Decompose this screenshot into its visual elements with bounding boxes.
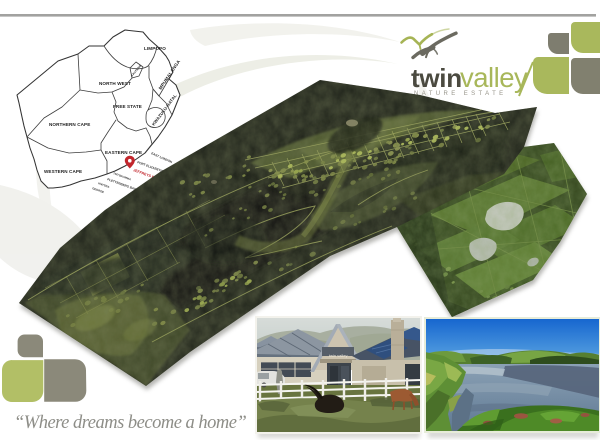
svg-text:NATURE ESTATE: NATURE ESTATE bbox=[414, 91, 507, 97]
svg-text:NORTH WEST: NORTH WEST bbox=[99, 81, 131, 86]
svg-text:NORTHERN CAPE: NORTHERN CAPE bbox=[49, 122, 90, 127]
svg-text:EASTERN CAPE: EASTERN CAPE bbox=[105, 150, 142, 155]
svg-text:FREE STATE: FREE STATE bbox=[113, 104, 142, 109]
svg-text:“Where dreams become a home”: “Where dreams become a home” bbox=[14, 413, 246, 433]
svg-text:WESTERN CAPE: WESTERN CAPE bbox=[44, 169, 82, 174]
svg-text:twin valley: twin valley bbox=[329, 353, 347, 358]
svg-text:LIMPOPO: LIMPOPO bbox=[144, 46, 166, 51]
svg-text:valley: valley bbox=[460, 62, 528, 93]
svg-text:twin: twin bbox=[411, 63, 462, 93]
